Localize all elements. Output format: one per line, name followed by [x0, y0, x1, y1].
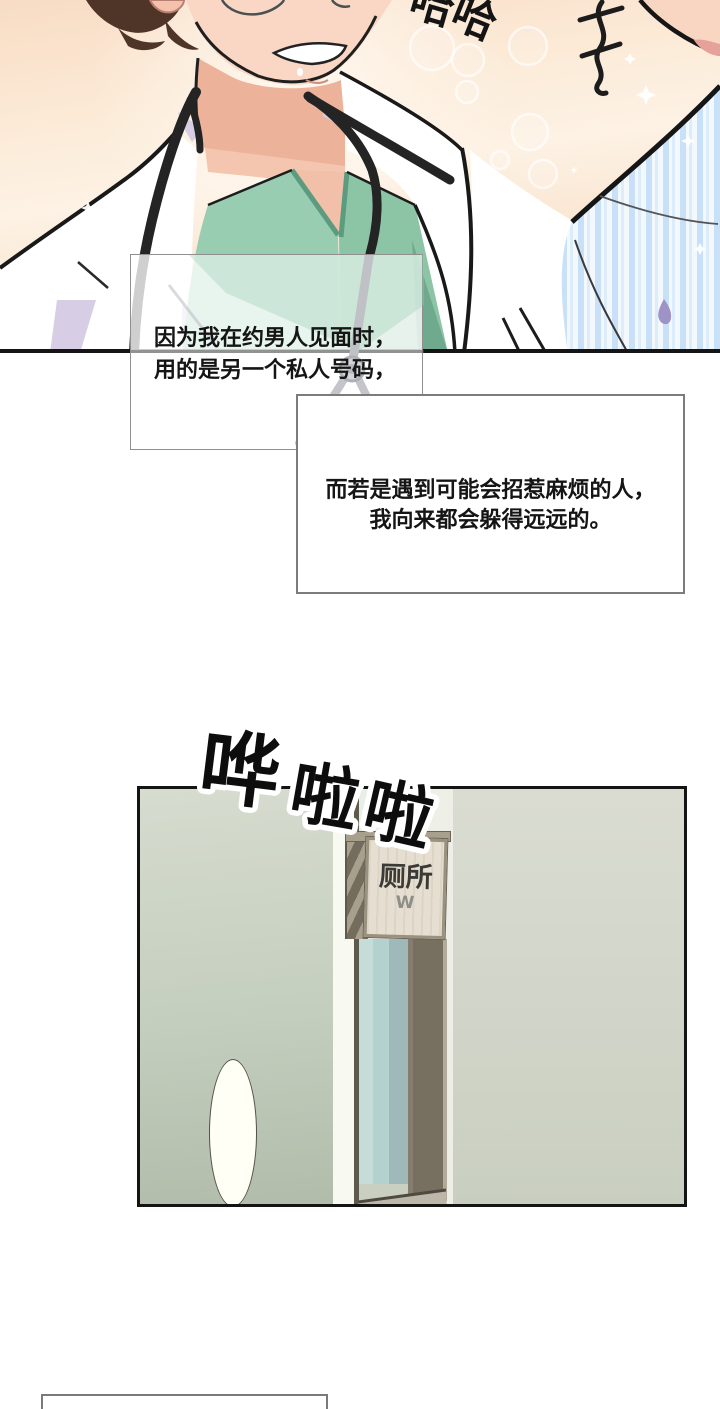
- narration-box-3-partial: [41, 1394, 328, 1409]
- narration-line: 用的是另一个私人号码，: [154, 355, 396, 387]
- sfx-char-2: 啦: [284, 753, 365, 843]
- narration-line: 因为我在约男人见面时，: [154, 323, 396, 355]
- narration-line: 我向来都会躲得远远的。: [298, 506, 683, 536]
- wall-light-reflection: [209, 1059, 257, 1207]
- door-glass: [359, 939, 389, 1184]
- toilet-sign-text: 厕所: [378, 864, 433, 894]
- door-edge-trim: [443, 939, 447, 1201]
- second-character-coat: [462, 150, 578, 353]
- water-sound-sfx: 哗 啦 啦: [170, 690, 480, 860]
- laugh-squiggle-icon: [580, 2, 622, 93]
- narration-text-2: 而若是遇到可能会招惹麻烦的人， 我向来都会躲得远远的。: [298, 476, 683, 536]
- narration-text-1: 因为我在约男人见面时， 用的是另一个私人号码，: [154, 323, 396, 387]
- second-character-chin: [640, 0, 720, 56]
- narration-box-2: 而若是遇到可能会招惹麻烦的人， 我向来都会躲得远远的。: [296, 394, 685, 594]
- second-character-striped-shirt: [562, 86, 720, 353]
- comic-page: 哈 哈 因为我在约男人见面时， 用的是另一个私人号码， 而若是遇到可能会招惹麻烦…: [0, 0, 720, 1409]
- open-door-edge: [408, 939, 443, 1201]
- doctor-hair: [86, 0, 199, 50]
- sfx-char-1: 哗: [195, 719, 286, 821]
- narration-line: 而若是遇到可能会招惹麻烦的人，: [298, 476, 683, 506]
- toilet-sign-letter: W: [395, 894, 414, 912]
- door-glass-shaded: [389, 939, 408, 1184]
- door-bottom-edge: [354, 1178, 454, 1204]
- sfx-char-3: 啦: [356, 769, 440, 860]
